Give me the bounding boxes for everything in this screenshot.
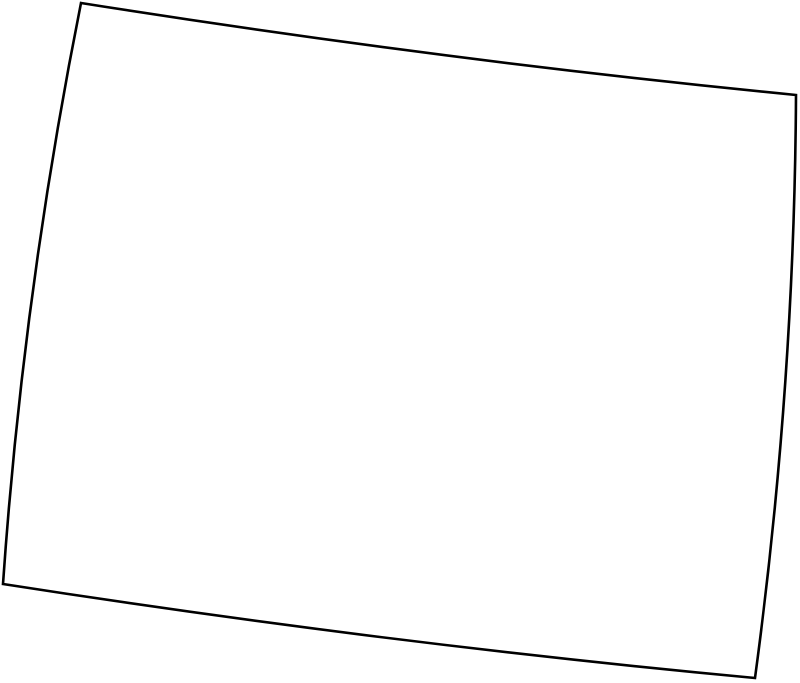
state-border-path [3,3,796,678]
map-canvas [0,0,800,683]
state-outline-map [0,0,800,683]
